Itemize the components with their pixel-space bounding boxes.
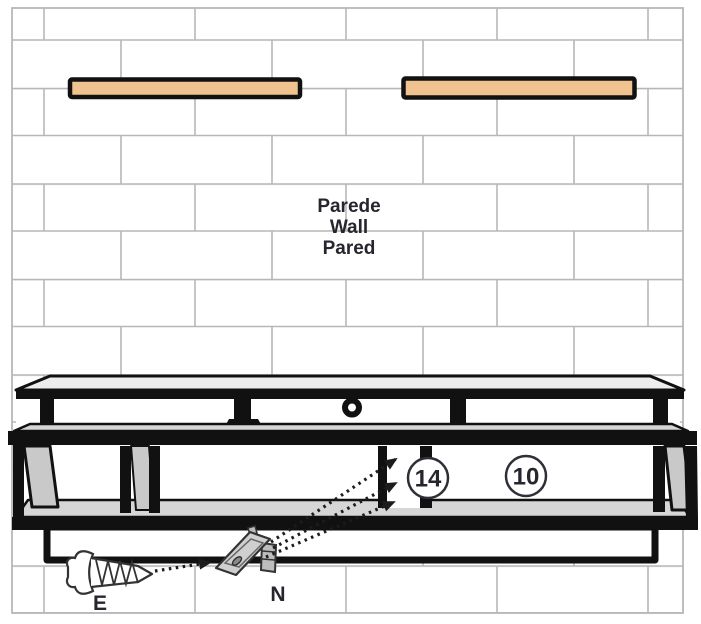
screw-head — [67, 551, 93, 594]
bottom-shelf-surface — [16, 500, 690, 517]
top-panel-front-edge — [16, 389, 684, 399]
wall-label-en: Wall — [330, 217, 368, 238]
assembly-diagram: Parede Wall Pared — [0, 0, 701, 624]
cable-hole — [345, 401, 359, 415]
bracket-label: N — [270, 583, 285, 606]
lower-divider-left — [120, 446, 160, 513]
base-plinth — [47, 527, 655, 560]
wall-batten-right — [404, 79, 635, 98]
bottom-front-edge — [12, 517, 698, 530]
middle-shelf-surface — [14, 424, 688, 431]
wall-label-pt: Parede — [317, 196, 380, 217]
callout-number-10: 10 — [513, 464, 540, 491]
wall-label-es: Pared — [323, 238, 376, 259]
top-panel-surface — [16, 376, 684, 390]
middle-shelf-front — [8, 431, 697, 445]
side-panel-right-edge-outer — [684, 446, 698, 519]
side-panel-right-edge-inner — [653, 446, 665, 512]
assembly-instruction-page: Parede Wall Pared — [0, 0, 701, 624]
tv-stand — [8, 376, 698, 560]
callout-part-14: 14 — [408, 458, 448, 498]
side-panel-left-edge — [13, 445, 24, 519]
wall-batten-left — [70, 80, 300, 98]
callout-part-10: 10 — [506, 456, 546, 496]
screw-label: E — [93, 592, 107, 615]
callout-number-14: 14 — [415, 466, 442, 493]
